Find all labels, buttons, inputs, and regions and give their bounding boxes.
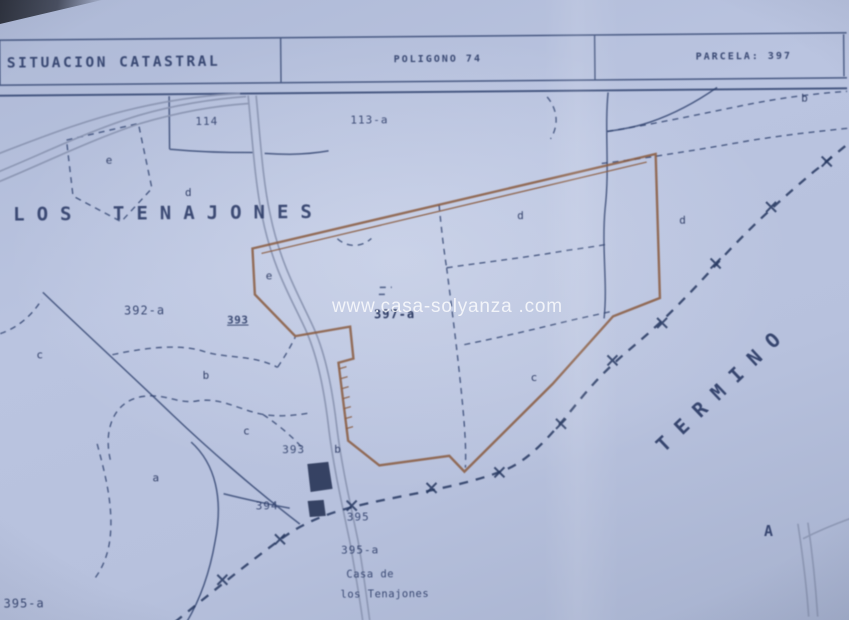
label-parcel-114: 114: [195, 116, 218, 127]
place-name-los-tenajones: LOS TENAJONES: [13, 203, 324, 225]
watermark-text: www.casa-solyanza .com: [332, 296, 563, 318]
label-casa-line1: Casa de: [346, 569, 394, 580]
subparcel-letter-e: e: [106, 155, 113, 166]
label-parcel-395a: 395-a: [341, 544, 379, 555]
label-parcel-113a: 113-a: [350, 114, 388, 125]
subparcel-letter-c: c: [36, 349, 43, 360]
subparcel-letter-d: d: [679, 215, 686, 226]
subparcel-letter-b: b: [203, 370, 210, 381]
label-parcel-395: 395: [347, 511, 370, 522]
label-parcel-393: 393: [282, 444, 305, 455]
subparcel-letter-b: b: [801, 93, 808, 104]
subparcel-letter-c: c: [531, 372, 538, 383]
subparcel-letter-a: a: [152, 472, 159, 483]
subparcel-letter-c: c: [243, 426, 250, 437]
subparcel-letter-d: d: [185, 187, 192, 198]
label-parcel-395a-left: 395-a: [3, 597, 44, 609]
label-point-A: A: [764, 524, 773, 539]
label-parcel-394: 394: [256, 500, 279, 511]
subparcel-letter-d: d: [517, 210, 524, 221]
label-marker-393: 393: [227, 315, 248, 326]
label-casa-line2: los Tenajones: [340, 589, 429, 600]
label-parcel-392a: 392-a: [124, 304, 165, 316]
cadastral-map-photo: SITUACION CATASTRAL POLIGONO 74 PARCELA:…: [0, 0, 849, 620]
subparcel-letter-b: b: [334, 444, 341, 455]
subparcel-letter-e: e: [266, 270, 273, 281]
